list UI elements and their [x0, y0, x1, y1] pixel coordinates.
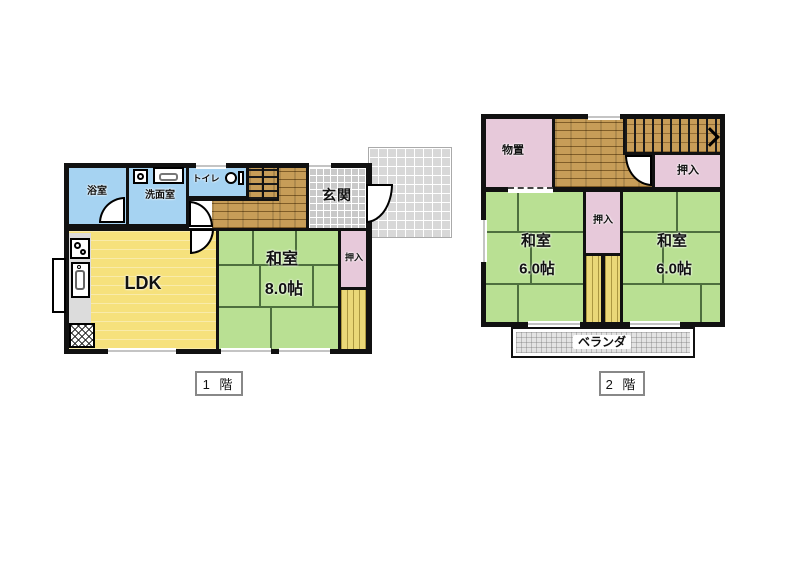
room-label-entrance: 玄関: [322, 188, 352, 202]
room-label-closet-2f-mid: 押入: [593, 216, 613, 226]
room-label-bath: 浴室: [87, 187, 107, 197]
storage-sliding-opening: [508, 187, 553, 193]
stove-icon: [70, 238, 90, 259]
engawa-strip: [341, 290, 366, 349]
window: [221, 348, 271, 354]
room-label-closet-1f: 押入: [345, 254, 363, 263]
window: [481, 220, 487, 262]
toilet-icon: [225, 172, 237, 184]
floor1-tag-label: 1 階: [203, 374, 236, 393]
window: [588, 114, 620, 120]
hallway-lower: [212, 201, 279, 228]
toilet-tank-icon: [238, 171, 244, 185]
sink-vanity-icon: [153, 167, 184, 184]
room-label-washitsu6-right-size: 6.0帖: [656, 262, 692, 277]
room-label-storage: 物置: [502, 146, 524, 157]
room-label-washroom: 洗面室: [145, 191, 175, 201]
floor2-tag-label: 2 階: [606, 374, 639, 393]
window: [196, 163, 226, 169]
room-label-washitsu6-right: 和室: [657, 234, 687, 249]
kitchen-sink-icon: [71, 262, 90, 298]
room-label-washitsu6-left: 和室: [521, 234, 551, 249]
room-label-washitsu8-size: 8.0帖: [265, 282, 303, 298]
floorplan-canvas: 浴室 洗面室 トイレ 玄関 LDK 和室 8.0帖 押入 1 階 物置 押入: [0, 0, 800, 565]
room-washitsu-6-left: [486, 192, 583, 322]
stairs-1f-divider: [262, 168, 264, 199]
hallway-2f: [555, 119, 623, 187]
floor1-tag: 1 階: [195, 371, 243, 396]
room-label-toilet: トイレ: [192, 175, 219, 184]
bay-window: [52, 258, 66, 313]
room-label-washitsu8: 和室: [266, 252, 298, 268]
room-label-ldk: LDK: [125, 274, 162, 292]
window: [279, 348, 330, 354]
underfloor-storage-icon: [69, 323, 95, 348]
floor2-tag: 2 階: [599, 371, 645, 396]
room-label-veranda: ベランダ: [573, 336, 631, 348]
room-label-closet-2f-top: 押入: [677, 166, 699, 177]
room-washitsu-6-right: [623, 192, 720, 322]
tokonoma-alcove: [586, 256, 620, 322]
window: [309, 163, 331, 169]
window: [108, 348, 176, 354]
hallway-upper: [279, 168, 306, 228]
room-label-washitsu6-left-size: 6.0帖: [519, 262, 555, 277]
washing-machine-icon: [133, 169, 148, 184]
